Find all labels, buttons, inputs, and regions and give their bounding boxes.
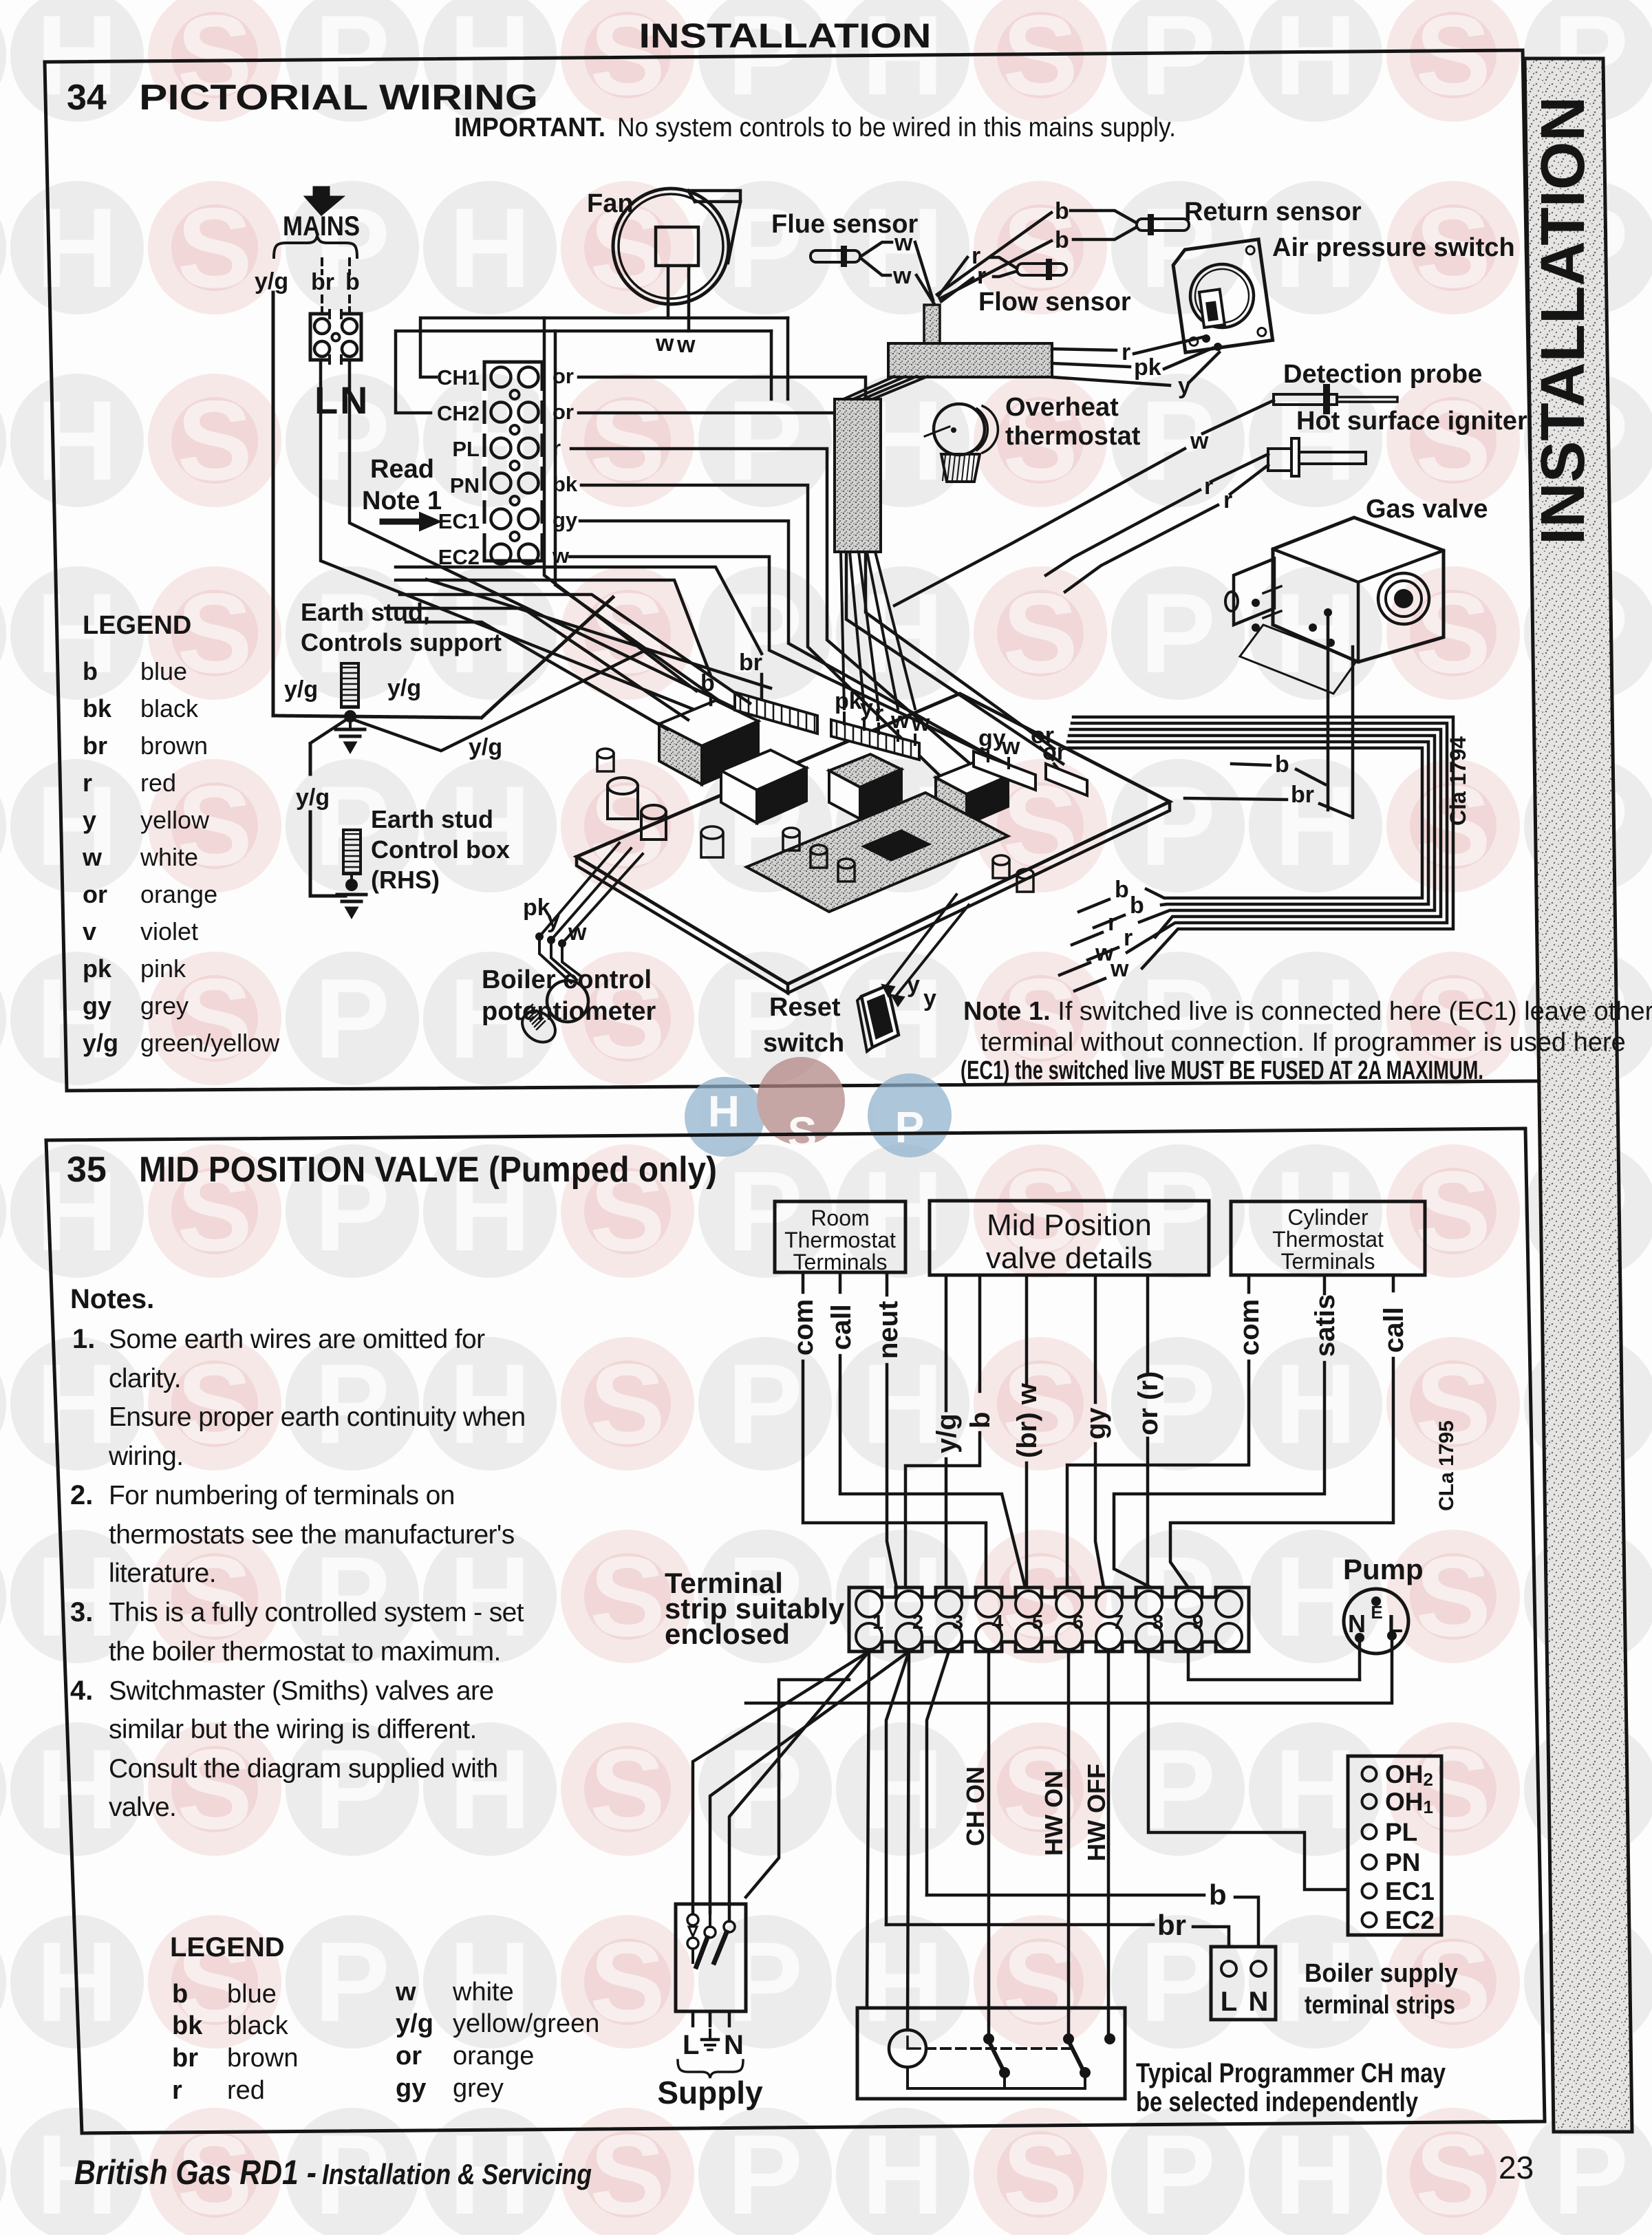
svg-text:r: r xyxy=(1122,339,1130,365)
svg-text:yellow/green: yellow/green xyxy=(453,2009,599,2038)
svg-text:Control box: Control box xyxy=(371,835,510,864)
svg-text:CH ON: CH ON xyxy=(961,1766,989,1846)
svg-text:r: r xyxy=(172,2076,182,2105)
svg-text:white: white xyxy=(452,1978,514,2007)
svg-text:N: N xyxy=(340,378,367,422)
svg-text:w: w xyxy=(890,707,910,734)
svg-text:r: r xyxy=(1223,487,1232,513)
svg-text:b: b xyxy=(83,657,98,685)
svg-text:b: b xyxy=(965,1412,996,1429)
svg-text:thermostat: thermostat xyxy=(1005,422,1141,451)
svg-text:terminal strips: terminal strips xyxy=(1305,1991,1455,2020)
svg-text:r: r xyxy=(83,769,92,797)
svg-text:pk: pk xyxy=(835,688,862,714)
svg-text:Gas valve: Gas valve xyxy=(1366,495,1488,524)
svg-text:Reset: Reset xyxy=(769,993,841,1022)
svg-text:5: 5 xyxy=(1032,1612,1043,1634)
svg-text:gy: gy xyxy=(83,992,111,1020)
svg-text:bk: bk xyxy=(172,2011,203,2040)
svg-text:Switchmaster (Smiths) valves a: Switchmaster (Smiths) valves are xyxy=(109,1676,493,1706)
svg-text:Supply: Supply xyxy=(657,2075,763,2110)
svg-text:or: or xyxy=(83,880,107,908)
svg-text:literature.: literature. xyxy=(109,1559,216,1588)
svg-text:enclosed: enclosed xyxy=(665,1618,790,1650)
svg-text:N: N xyxy=(1249,1987,1269,2017)
svg-text:w: w xyxy=(894,230,913,256)
svg-text:call: call xyxy=(1379,1307,1409,1353)
svg-text:This is a fully controlled sys: This is a fully controlled system - set xyxy=(109,1598,524,1627)
svg-text:valve.: valve. xyxy=(109,1793,176,1822)
svg-text:LEGEND: LEGEND xyxy=(83,611,191,640)
svg-text:brown: brown xyxy=(140,731,208,760)
svg-text:w: w xyxy=(1190,428,1209,454)
svg-text:pk: pk xyxy=(83,954,112,983)
svg-text:or (r): or (r) xyxy=(1133,1371,1163,1435)
svg-text:Note 1. If switched live is co: Note 1. If switched live is connected he… xyxy=(963,997,1652,1026)
svg-text:N: N xyxy=(1348,1610,1366,1638)
svg-text:23: 23 xyxy=(1499,2150,1534,2185)
svg-text:Flow sensor: Flow sensor xyxy=(978,288,1131,317)
svg-text:gy: gy xyxy=(1081,1407,1111,1440)
svg-text:grey: grey xyxy=(453,2074,504,2103)
svg-text:call: call xyxy=(826,1304,857,1350)
svg-text:y: y xyxy=(923,985,936,1012)
svg-text:For numbering of terminals on: For numbering of terminals on xyxy=(109,1481,455,1510)
svg-text:L: L xyxy=(314,378,338,422)
svg-text:y/g: y/g xyxy=(284,676,318,703)
svg-text:br: br xyxy=(739,650,762,676)
svg-text:gy: gy xyxy=(396,2074,426,2103)
svg-text:No system controls to be wired: No system controls to be wired in this m… xyxy=(617,113,1176,142)
svg-text:7: 7 xyxy=(1113,1612,1124,1634)
svg-text:br: br xyxy=(172,2044,198,2073)
svg-text:y/g: y/g xyxy=(932,1413,962,1453)
svg-text:Some earth wires are omitted f: Some earth wires are omitted for xyxy=(109,1325,485,1354)
svg-text:Typical Programmer CH may: Typical Programmer CH may xyxy=(1136,2058,1446,2088)
svg-text:w: w xyxy=(1001,734,1020,760)
svg-text:black: black xyxy=(227,2011,289,2040)
svg-text:y: y xyxy=(83,806,96,834)
svg-text:PICTORIAL WIRING: PICTORIAL WIRING xyxy=(139,78,538,118)
svg-text:y/g: y/g xyxy=(83,1029,118,1057)
svg-text:clarity.: clarity. xyxy=(109,1364,181,1393)
svg-text:pink: pink xyxy=(140,954,186,983)
svg-text:CLa 1795: CLa 1795 xyxy=(1435,1420,1458,1511)
svg-text:Consult the diagram supplied w: Consult the diagram supplied with xyxy=(109,1754,498,1784)
svg-text:P: P xyxy=(895,1102,925,1152)
svg-text:INSTALLATION: INSTALLATION xyxy=(1529,96,1598,545)
svg-text:PL: PL xyxy=(452,437,480,461)
svg-text:Thermostat: Thermostat xyxy=(1272,1227,1384,1252)
svg-text:com: com xyxy=(789,1299,819,1356)
svg-text:br: br xyxy=(1291,782,1314,808)
svg-text:y/g: y/g xyxy=(469,734,502,760)
svg-text:r: r xyxy=(1124,925,1133,951)
svg-text:be selected independently: be selected independently xyxy=(1136,2087,1419,2117)
svg-text:r: r xyxy=(1204,473,1213,500)
svg-text:35: 35 xyxy=(67,1150,107,1190)
svg-text:6: 6 xyxy=(1073,1612,1084,1634)
svg-text:thermostats see the manufactur: thermostats see the manufacturer's xyxy=(109,1520,515,1550)
svg-text:3.: 3. xyxy=(70,1597,93,1627)
svg-text:b: b xyxy=(172,1980,188,2009)
svg-text:N: N xyxy=(724,2030,744,2060)
svg-text:wiring.: wiring. xyxy=(108,1442,184,1471)
svg-text:neut: neut xyxy=(873,1301,903,1359)
svg-text:CH1: CH1 xyxy=(437,365,480,389)
svg-text:8: 8 xyxy=(1152,1612,1163,1634)
svg-text:y/g: y/g xyxy=(396,2009,433,2038)
svg-text:b: b xyxy=(345,269,360,295)
svg-text:red: red xyxy=(140,769,176,797)
svg-text:white: white xyxy=(140,843,198,871)
svg-text:v: v xyxy=(83,917,96,945)
svg-text:b: b xyxy=(1055,227,1069,253)
svg-text:LEGEND: LEGEND xyxy=(170,1932,285,1963)
svg-text:4: 4 xyxy=(992,1612,1003,1634)
svg-text:w: w xyxy=(911,710,930,736)
svg-text:bk: bk xyxy=(83,694,112,723)
svg-text:HW ON: HW ON xyxy=(1040,1771,1068,1856)
svg-text:Notes.: Notes. xyxy=(70,1284,154,1314)
svg-text:green/yellow: green/yellow xyxy=(140,1029,280,1057)
svg-text:grey: grey xyxy=(140,992,189,1020)
svg-text:PN: PN xyxy=(450,473,480,498)
svg-text:brown: brown xyxy=(227,2044,299,2073)
svg-text:blue: blue xyxy=(140,657,187,685)
svg-text:Ensure proper earth continuity: Ensure proper earth continuity when xyxy=(109,1402,526,1432)
svg-text:Cla 1794: Cla 1794 xyxy=(1446,736,1470,826)
svg-text:Cylinder: Cylinder xyxy=(1287,1205,1369,1230)
svg-text:Mid Position: Mid Position xyxy=(987,1208,1152,1242)
svg-text:(br) w: (br) w xyxy=(1012,1382,1042,1458)
svg-text:Terminals: Terminals xyxy=(793,1250,888,1274)
svg-text:orange: orange xyxy=(453,2042,534,2071)
svg-text:Terminals: Terminals xyxy=(1281,1249,1375,1274)
svg-text:EC1: EC1 xyxy=(1385,1877,1435,1905)
svg-text:valve details: valve details xyxy=(986,1241,1152,1275)
svg-text:EC2: EC2 xyxy=(1385,1906,1435,1934)
svg-text:w: w xyxy=(568,919,587,945)
svg-text:similar but the wiring is diff: similar but the wiring is different. xyxy=(109,1715,477,1744)
svg-text:2.: 2. xyxy=(70,1480,93,1510)
svg-text:H: H xyxy=(708,1087,740,1136)
svg-text:1.: 1. xyxy=(72,1324,95,1354)
svg-text:yellow: yellow xyxy=(140,806,210,834)
svg-text:Thermostat: Thermostat xyxy=(784,1228,896,1252)
svg-text:Earth stud: Earth stud xyxy=(371,805,493,833)
svg-text:or: or xyxy=(396,2042,422,2071)
svg-text:blue: blue xyxy=(227,1980,277,2009)
svg-text:Read: Read xyxy=(370,455,434,484)
svg-text:(RHS): (RHS) xyxy=(371,866,440,894)
svg-text:PN: PN xyxy=(1385,1848,1420,1876)
svg-text:br: br xyxy=(83,731,107,760)
svg-text:EC1: EC1 xyxy=(438,509,480,533)
svg-text:Installation & Servicing: Installation & Servicing xyxy=(322,2158,592,2190)
svg-text:the boiler thermostat to maxim: the boiler thermostat to maximum. xyxy=(109,1637,501,1667)
svg-text:Hot surface igniter: Hot surface igniter xyxy=(1296,407,1527,436)
svg-text:y: y xyxy=(907,972,920,998)
svg-text:w: w xyxy=(82,843,103,871)
svg-text:4.: 4. xyxy=(70,1676,93,1706)
svg-text:r: r xyxy=(1108,910,1117,936)
svg-text:y: y xyxy=(1178,373,1191,399)
svg-text:IMPORTANT.: IMPORTANT. xyxy=(454,113,605,142)
svg-text:Overheat: Overheat xyxy=(1005,393,1119,422)
svg-text:br: br xyxy=(1157,1909,1186,1941)
svg-text:w: w xyxy=(1095,940,1114,966)
svg-text:Pump: Pump xyxy=(1343,1553,1424,1585)
svg-text:y/g: y/g xyxy=(255,268,288,295)
svg-text:b: b xyxy=(1275,751,1289,778)
svg-text:34: 34 xyxy=(67,78,107,118)
svg-text:L: L xyxy=(1221,1987,1237,2017)
svg-text:com: com xyxy=(1234,1299,1265,1356)
svg-text:British Gas RD1 -: British Gas RD1 - xyxy=(74,2153,317,2192)
svg-text:INSTALLATION: INSTALLATION xyxy=(639,17,932,55)
svg-text:1: 1 xyxy=(872,1612,883,1634)
svg-text:y/g: y/g xyxy=(296,784,330,811)
svg-text:black: black xyxy=(140,694,199,723)
svg-text:CH2: CH2 xyxy=(437,401,480,425)
svg-text:Controls support: Controls support xyxy=(301,628,502,656)
svg-text:L: L xyxy=(683,2030,699,2060)
svg-text:terminal without connection. I: terminal without connection. If programm… xyxy=(980,1028,1626,1057)
svg-text:9: 9 xyxy=(1192,1612,1203,1634)
svg-text:pk: pk xyxy=(523,895,550,921)
svg-text:y: y xyxy=(547,907,560,933)
svg-text:orange: orange xyxy=(140,880,217,908)
svg-text:w: w xyxy=(676,332,696,358)
svg-text:MID POSITION VALVE (Pumped onl: MID POSITION VALVE (Pumped only) xyxy=(139,1150,717,1190)
svg-text:PL: PL xyxy=(1385,1818,1417,1846)
svg-text:MAINS: MAINS xyxy=(283,211,360,242)
svg-text:Note 1: Note 1 xyxy=(362,486,442,515)
svg-text:red: red xyxy=(227,2076,265,2105)
svg-text:violet: violet xyxy=(140,917,198,945)
svg-text:pk: pk xyxy=(1134,354,1161,381)
svg-text:Detection probe: Detection probe xyxy=(1283,360,1482,389)
svg-text:b: b xyxy=(1209,1879,1227,1911)
svg-text:Boiler supply: Boiler supply xyxy=(1305,1959,1458,1988)
svg-text:y: y xyxy=(860,695,873,721)
svg-text:Room: Room xyxy=(811,1206,869,1230)
svg-text:Fan: Fan xyxy=(587,189,634,218)
svg-text:b: b xyxy=(1115,877,1129,903)
svg-text:switch: switch xyxy=(763,1029,844,1058)
svg-text:2: 2 xyxy=(912,1612,923,1634)
svg-text:3: 3 xyxy=(952,1612,963,1634)
svg-text:w: w xyxy=(655,330,674,356)
svg-text:y/g: y/g xyxy=(387,675,421,701)
svg-text:w: w xyxy=(892,263,912,289)
svg-text:Air pressure switch: Air pressure switch xyxy=(1272,233,1515,262)
svg-text:b: b xyxy=(1130,892,1144,919)
svg-text:w: w xyxy=(395,1978,416,2007)
svg-text:satis: satis xyxy=(1310,1294,1340,1357)
svg-text:(EC1) the switched live MUST B: (EC1) the switched live MUST BE FUSED AT… xyxy=(961,1056,1483,1085)
svg-text:HW OFF: HW OFF xyxy=(1082,1764,1111,1861)
svg-text:b: b xyxy=(1055,198,1069,224)
svg-text:Return sensor: Return sensor xyxy=(1184,197,1362,226)
